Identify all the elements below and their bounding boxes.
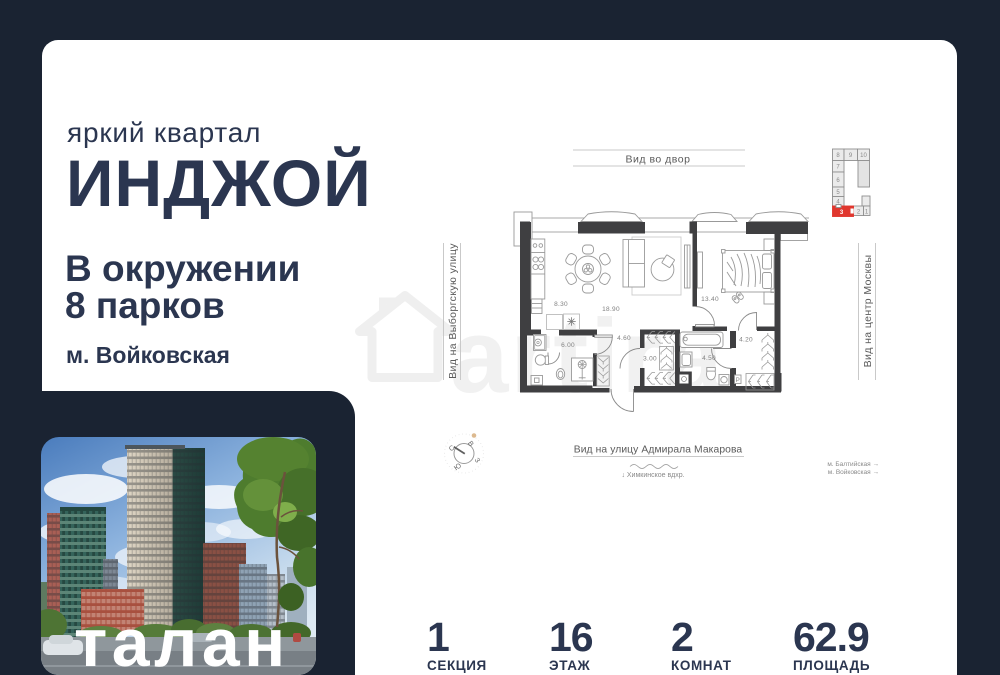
svg-text:4.50: 4.50 [702, 355, 716, 362]
svg-text:3.00: 3.00 [643, 356, 657, 363]
svg-text:10: 10 [860, 153, 867, 159]
svg-text:↓ Химкинское вдхр.: ↓ Химкинское вдхр. [621, 472, 684, 479]
svg-text:6.00: 6.00 [561, 342, 575, 349]
svg-text:4.20: 4.20 [739, 337, 753, 344]
svg-text:м. Балтийская →: м. Балтийская → [827, 460, 879, 468]
svg-text:Вид на центр Москвы: Вид на центр Москвы [862, 255, 874, 368]
svg-text:4.60: 4.60 [617, 335, 631, 342]
svg-text:Р: Р [736, 377, 740, 384]
svg-text:13.40: 13.40 [701, 296, 719, 303]
svg-text:Вид во двор: Вид во двор [626, 154, 691, 166]
svg-text:Вид на Выборгскую улицу: Вид на Выборгскую улицу [447, 243, 459, 379]
svg-text:З: З [473, 457, 481, 464]
svg-text:Вид на улицу Адмирала Макарова: Вид на улицу Адмирала Макарова [574, 445, 743, 456]
svg-text:8.30: 8.30 [554, 301, 568, 308]
svg-text:м. Войковская →: м. Войковская → [828, 468, 879, 476]
svg-text:18.90: 18.90 [602, 306, 620, 313]
